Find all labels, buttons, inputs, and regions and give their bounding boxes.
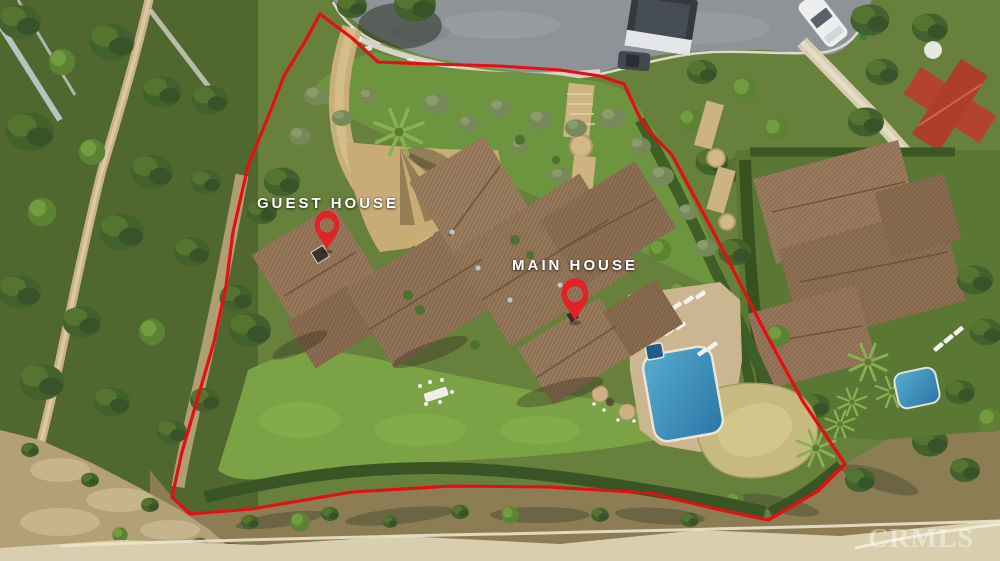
crmls-watermark: CRMLS — [868, 522, 974, 554]
neighbor-pool — [893, 366, 942, 410]
suv — [617, 51, 650, 72]
guest-house-label: GUEST HOUSE — [232, 194, 424, 211]
main-house-label: MAIN HOUSE — [480, 256, 670, 273]
scene-graphic — [0, 0, 1000, 561]
aerial-photo: GUEST HOUSE MAIN HOUSE CRMLS — [0, 0, 1000, 561]
